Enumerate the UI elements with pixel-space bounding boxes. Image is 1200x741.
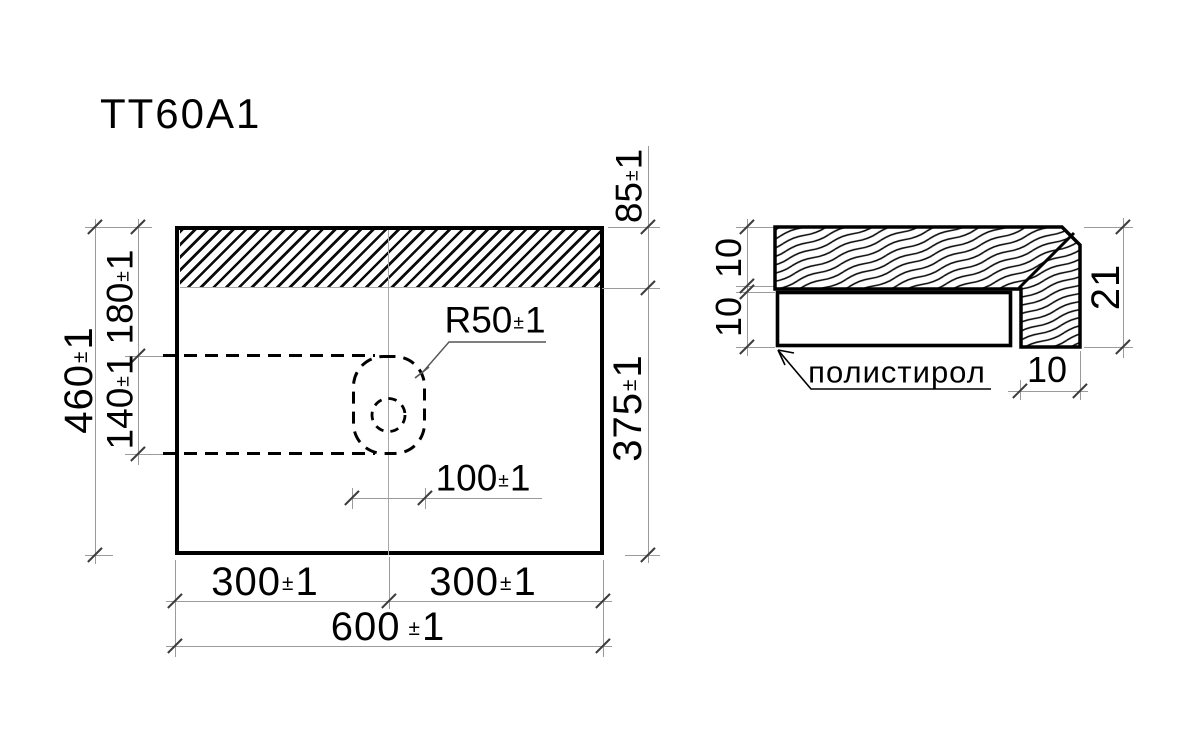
extension-line bbox=[1084, 347, 1133, 348]
dim-edge-width: 10 bbox=[1027, 352, 1067, 388]
material-label: полистирол bbox=[808, 357, 986, 388]
foam-core-rect bbox=[778, 293, 1011, 346]
extension-line bbox=[736, 227, 775, 228]
dim-bottom-left: 300±1 bbox=[211, 562, 318, 602]
dim-foam-thickness: 10 bbox=[711, 297, 747, 337]
dim-bottom-total: 600±1 bbox=[331, 607, 445, 647]
drawing-title: TT60A1 bbox=[100, 90, 261, 138]
technical-drawing-canvas: TT60A1 460±1 180±1 140±1 85±1 375±1 R50±… bbox=[0, 0, 1200, 741]
extension-line bbox=[1084, 227, 1133, 228]
material-leader-arrow bbox=[778, 350, 794, 365]
section-miter-seam bbox=[1019, 233, 1074, 288]
dim-right-upper: 85±1 bbox=[611, 149, 648, 223]
extension-line bbox=[736, 347, 775, 348]
dim-right-lower: 375±1 bbox=[608, 354, 648, 461]
extension-line bbox=[608, 227, 660, 228]
extension-line bbox=[602, 288, 660, 289]
dim-top-thickness: 10 bbox=[711, 238, 747, 278]
dim-total-thickness: 21 bbox=[1086, 264, 1126, 311]
dim-hole-offset: 100±1 bbox=[436, 460, 531, 497]
extension-line bbox=[625, 555, 660, 556]
dim-radius: R50±1 bbox=[444, 302, 545, 339]
extension-line bbox=[125, 454, 163, 455]
extension-line bbox=[85, 555, 113, 556]
extension-line bbox=[736, 286, 775, 287]
hatch-band bbox=[180, 230, 600, 288]
dim-height-total: 460±1 bbox=[59, 326, 99, 433]
centerline-vertical bbox=[388, 230, 389, 555]
dim-left-upper: 180±1 bbox=[102, 250, 139, 345]
section-profile bbox=[775, 227, 1080, 347]
dim-left-lower: 140±1 bbox=[102, 355, 139, 450]
dim-bottom-right: 300±1 bbox=[429, 562, 536, 602]
dashed-line-upper bbox=[163, 354, 375, 357]
dashed-line-lower bbox=[163, 452, 375, 455]
